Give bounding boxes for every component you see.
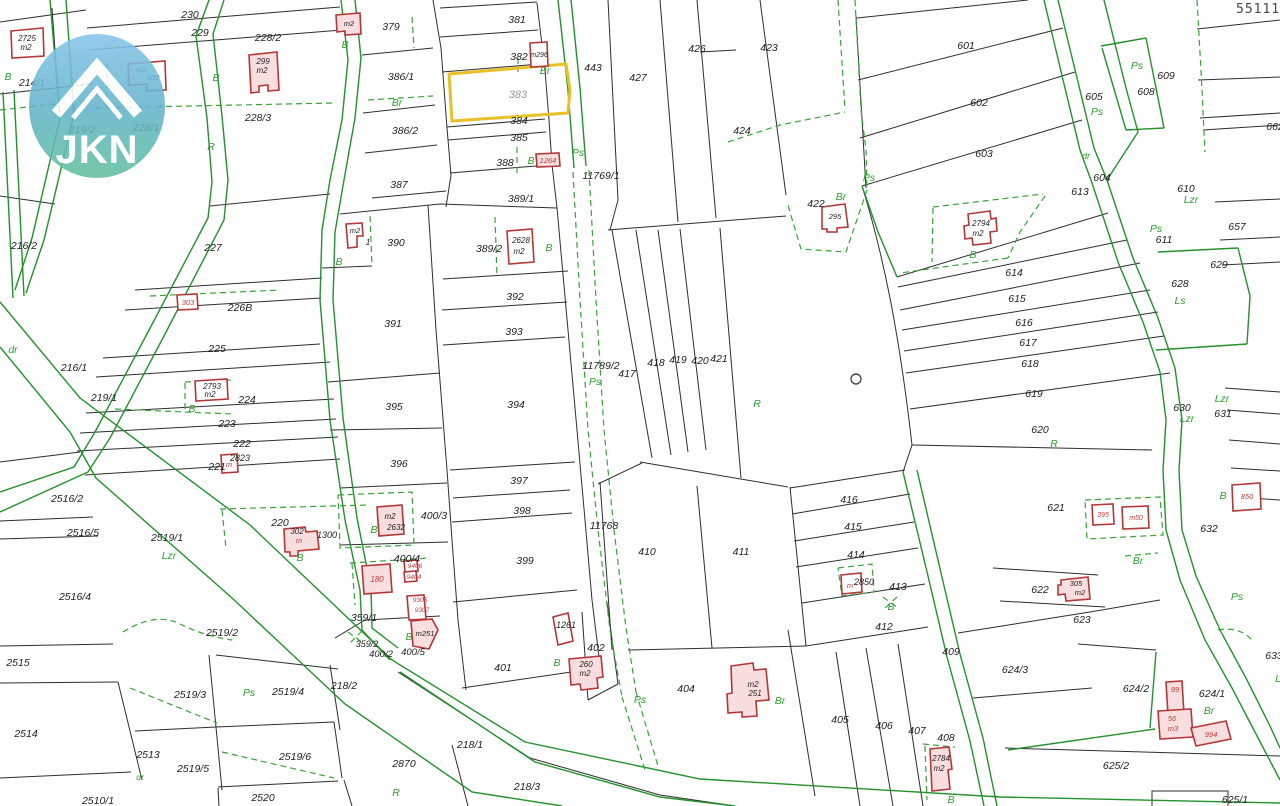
landuse-boundary-dashed <box>622 697 645 770</box>
parcel-boundary-line <box>1005 748 1280 756</box>
building-label: m2 <box>579 669 591 678</box>
parcel-number-label: 415 <box>844 521 862 533</box>
parcel-boundary-line <box>216 655 338 669</box>
parcel-number-label: 2515 <box>5 657 30 669</box>
parcel-boundary-line <box>1215 199 1280 202</box>
parcel-number-label: 619 <box>1025 388 1043 400</box>
parcel-boundary-line <box>340 204 557 214</box>
landuse-label: B <box>545 242 552 254</box>
landuse-label: B <box>887 601 894 613</box>
parcel-number-label: 230 <box>180 9 199 21</box>
parcel-boundary-line <box>87 7 340 28</box>
landuse-label: Ps <box>863 172 876 184</box>
landuse-label: B <box>188 403 195 415</box>
parcel-boundary-line <box>660 0 678 222</box>
parcel-boundary-line <box>0 682 118 683</box>
landuse-label: dr <box>136 772 145 782</box>
parcel-number-label: 2516/5 <box>66 527 99 539</box>
parcel-number-label: 410 <box>638 546 656 558</box>
survey-point-marker <box>851 374 861 384</box>
parcel-number-label: 2823 <box>229 453 250 463</box>
parcel-number-label: 411 <box>733 546 750 558</box>
parcel-number-label: 617 <box>1019 337 1038 349</box>
parcel-number-label: 216/1 <box>60 362 87 374</box>
parcel-boundary-line <box>209 655 216 727</box>
road-edge-line <box>917 470 997 806</box>
parcel-number-label: 386/1 <box>388 71 414 83</box>
building-label: 9404 <box>407 574 422 581</box>
parcel-number-label: 620 <box>1031 424 1049 436</box>
parcel-boundary-line <box>344 780 352 806</box>
parcel-number-label: 413 <box>889 581 907 593</box>
building-label: 56 <box>1168 714 1177 723</box>
parcel-boundary-line <box>453 490 570 498</box>
building-label: m2 <box>344 19 355 28</box>
road-edge-line <box>1158 248 1238 252</box>
building-label: m50 <box>1129 515 1143 522</box>
parcel-boundary-line <box>862 120 1082 186</box>
parcel-number-label: 408 <box>937 732 955 744</box>
logo-text: JKN <box>29 130 165 170</box>
parcel-boundary-line <box>862 186 912 445</box>
building-label: 260 <box>578 660 593 669</box>
road-edge-line <box>558 0 574 168</box>
parcel-number-label: 221 <box>207 461 226 473</box>
landuse-label: Ps <box>243 687 256 699</box>
landuse-label: Br <box>540 65 551 77</box>
selected-parcel-highlight[interactable]: 383 <box>449 64 570 121</box>
parcel-boundary-line <box>0 772 131 778</box>
parcel-number-label: 218/2 <box>330 680 357 692</box>
landuse-label: Lzr <box>162 550 177 562</box>
landuse-label: R <box>753 398 761 410</box>
landuse-boundary-dashed <box>115 409 232 414</box>
parcel-boundary-line <box>0 517 93 521</box>
parcel-boundary-line <box>218 781 338 787</box>
parcel-boundary-line <box>443 337 565 345</box>
landuse-label: R <box>207 141 215 153</box>
parcel-boundary-line <box>0 452 80 462</box>
parcel-number-label: 381 <box>508 14 526 26</box>
parcel-boundary-line <box>452 513 572 522</box>
landuse-boundary-dashed <box>1008 196 1045 258</box>
parcel-number-label: 389/1 <box>508 193 534 205</box>
parcel-number-label: 404 <box>677 683 695 695</box>
parcel-boundary-line <box>788 630 815 796</box>
landuse-label: Ps <box>1091 106 1104 118</box>
parcel-number-label: 397 <box>510 475 529 487</box>
parcel-number-label: 400/4 <box>394 553 420 565</box>
parcel-boundary-line <box>973 688 1092 698</box>
parcel-number-label: 220 <box>270 517 289 529</box>
landuse-label: B <box>212 72 219 84</box>
parcel-boundary-line <box>125 298 321 310</box>
parcel-number-label: 2516/4 <box>58 591 91 603</box>
highlighted-parcel-label: 383 <box>509 89 528 101</box>
buildings-layer: 2725m2m2100299m2m2m29612643032793m2m302m… <box>11 13 1261 791</box>
landuse-label: Ps <box>1231 591 1244 603</box>
landuse-label: R <box>1050 438 1058 450</box>
landuse-boundary-dashed <box>900 258 1008 273</box>
parcel-boundary-line <box>1229 440 1280 444</box>
parcel-boundary-line <box>365 145 437 153</box>
parcel-boundary-line <box>608 216 786 230</box>
road-edge-line <box>1146 38 1164 128</box>
parcel-boundary-line <box>340 483 447 488</box>
parcel-number-label: 625/2 <box>1103 760 1129 772</box>
landuse-boundary-dashed <box>573 172 622 697</box>
parcel-boundary-line <box>216 727 222 790</box>
parcel-number-label: 222 <box>232 438 251 450</box>
parcel-boundary-line <box>1198 77 1280 80</box>
parcel-number-label: 443 <box>584 62 602 74</box>
parcel-boundary-line <box>1000 601 1105 607</box>
parcel-number-label: 629 <box>1210 259 1228 271</box>
landuse-label: B <box>370 524 377 536</box>
parcel-number-label: 631 <box>1214 408 1232 420</box>
parcel-number-label: 2513 <box>135 749 160 761</box>
parcel-boundary-line <box>1200 113 1280 118</box>
building-label: 2784 <box>931 754 950 763</box>
landuse-label: Ps <box>572 147 585 159</box>
parcel-number-label: 2510/1 <box>81 795 114 806</box>
parcel-boundary-line <box>658 230 688 452</box>
road-edge-line <box>0 347 562 806</box>
parcel-number-label: 226B <box>227 302 253 314</box>
parcel-number-label: 379 <box>382 21 400 33</box>
parcel-boundary-line <box>958 600 1160 633</box>
parcel-number-label: 2519/2 <box>205 627 238 639</box>
parcel-boundary-line <box>0 10 86 22</box>
building-label: 302 <box>290 527 304 536</box>
parcel-number-label: 621 <box>1047 502 1065 514</box>
parcel-number-label: 422 <box>807 198 825 210</box>
landuse-label: Ps <box>1131 60 1144 72</box>
building-label: 251 <box>747 689 761 698</box>
building-label: 9307 <box>415 607 430 614</box>
parcel-number-label: 420 <box>691 355 709 367</box>
parcel-number-label: 624/2 <box>1123 683 1149 695</box>
parcel-number-label: 400/2 <box>369 649 393 660</box>
parcel-boundary-line <box>1078 644 1156 650</box>
landuse-label: B <box>341 39 348 51</box>
parcel-number-label: 657 <box>1228 221 1247 233</box>
parcel-number-label: 384 <box>510 115 528 127</box>
parcel-number-label: 623 <box>1073 614 1091 626</box>
landuse-label: R <box>392 787 400 799</box>
parcel-number-label: 615 <box>1008 293 1026 305</box>
building-footprint <box>964 211 997 245</box>
cadastral-map[interactable]: 383 2725m2m2100299m2m2m29612643032793m2m… <box>0 0 1280 806</box>
parcel-boundary-line <box>628 646 806 650</box>
parcel-number-label: 2519/5 <box>176 763 209 775</box>
parcel-number-label: 224 <box>237 394 256 406</box>
parcel-number-label: 218/1 <box>456 739 483 751</box>
parcel-boundary-line <box>1225 388 1280 392</box>
parcel-number-label: 1 <box>366 237 371 247</box>
parcel-boundary-line <box>598 463 642 484</box>
parcel-number-label: 395 <box>385 401 403 413</box>
building-label: 180 <box>370 575 384 584</box>
building-label: 99 <box>1171 685 1180 694</box>
landuse-label: Br <box>775 695 786 707</box>
parcel-number-label: 601 <box>957 40 975 52</box>
map-sheet-number: 5511115 <box>1236 2 1280 17</box>
parcel-boundary-line <box>636 230 671 455</box>
parcel-boundary-line <box>442 302 567 310</box>
parcel-boundary-line <box>135 722 334 731</box>
parcel-boundary-line <box>680 229 706 450</box>
parcel-boundary-line <box>897 213 1108 277</box>
parcel-boundary-line <box>77 437 338 451</box>
landuse-label: B <box>335 256 342 268</box>
parcel-boundary-line <box>0 644 113 646</box>
cadastral-map-viewport[interactable]: 383 2725m2m2100299m2m2m29612643032793m2m… <box>0 0 1280 806</box>
landuse-label: B <box>4 71 11 83</box>
parcel-boundary-line <box>1231 468 1280 471</box>
building-label: 2628 <box>511 236 530 245</box>
parcel-number-label: 407 <box>908 725 927 737</box>
parcel-number-label: 11768 <box>590 520 619 532</box>
parcel-boundary-line <box>1222 262 1280 265</box>
parcel-number-label: 624/3 <box>1002 664 1028 676</box>
parcel-number-label: 219/1 <box>90 392 117 404</box>
parcel-number-label: 426 <box>688 43 706 55</box>
landuse-label: Br <box>836 191 847 203</box>
building-label: 994 <box>1205 730 1218 739</box>
parcel-number-label: 605 <box>1085 91 1103 103</box>
parcel-number-label: 421 <box>710 353 728 365</box>
parcel-number-label: 389/2 <box>476 243 502 255</box>
parcel-number-label: 400/5 <box>401 647 425 658</box>
landuse-boundary-dashed <box>1197 0 1205 152</box>
parcel-boundary-line <box>640 462 788 487</box>
landuse-label: Br <box>1133 555 1144 567</box>
building-label: 1264 <box>540 156 557 165</box>
parcel-number-label: 225 <box>207 343 226 355</box>
road-edge-line <box>1104 0 1138 180</box>
landuse-label: B <box>553 657 560 669</box>
parcel-boundary-line <box>790 470 905 488</box>
landuse-label: Lzr <box>1180 413 1195 425</box>
parcel-boundary-line <box>903 445 912 472</box>
road-edge-line <box>1238 248 1250 344</box>
landuse-boundary-dashed <box>933 194 1043 207</box>
building-label: m2 <box>350 226 361 235</box>
landuse-boundary-dashed <box>222 510 226 548</box>
landuse-label: L <box>1275 673 1280 685</box>
road-edge-line <box>3 92 13 298</box>
landuse-label: B <box>969 249 976 261</box>
parcel-number-label: 622 <box>1031 584 1049 596</box>
landuse-label: Ps <box>634 694 647 706</box>
parcel-number-label: 604 <box>1093 172 1111 184</box>
building-label: m2 <box>256 66 268 75</box>
road-edge-line <box>862 186 897 277</box>
parcel-number-label: 385 <box>510 132 528 144</box>
parcel-boundary-line <box>760 0 786 195</box>
parcel-number-label: 412 <box>875 621 893 633</box>
building-label: 303 <box>182 298 195 307</box>
landuse-boundary-dashed <box>838 0 845 110</box>
building-label: 850 <box>1241 492 1254 501</box>
parcel-boundary-line <box>1227 410 1280 414</box>
parcel-number-label: 611 <box>1156 234 1173 246</box>
landuse-boundary-dashed <box>412 17 414 48</box>
road-edge-line <box>1150 652 1156 728</box>
parcel-number-label: 419 <box>669 354 687 366</box>
parcel-boundary-line <box>362 48 433 55</box>
parcel-boundary-line <box>993 568 1098 575</box>
parcel-number-label: 396 <box>390 458 408 470</box>
survey-point <box>851 374 861 384</box>
building-label: m2 <box>384 512 396 521</box>
parcel-number-label: 417 <box>618 368 637 380</box>
landuse-label: Lzr <box>1184 194 1199 206</box>
parcel-boundary-line <box>340 542 448 545</box>
road-edge-line <box>1156 344 1247 350</box>
parcel-boundary-line <box>912 445 1152 450</box>
parcel-boundary-line <box>1197 20 1280 29</box>
landuse-label: dr <box>8 344 18 356</box>
parcel-boundary-line <box>440 2 537 8</box>
parcel-number-label: 2516/2 <box>50 493 83 505</box>
parcel-number-label: 11769/1 <box>582 170 619 182</box>
building-label: m251 <box>416 629 435 638</box>
parcel-number-label: 216/2 <box>10 240 37 252</box>
landuse-label: B <box>527 155 534 167</box>
parcel-number-label: 616 <box>1015 317 1033 329</box>
building-label: m <box>847 581 853 590</box>
parcel-number-label: 400/3 <box>421 510 447 522</box>
parcel-number-label: 427 <box>629 72 648 84</box>
landuse-boundary-dashed <box>589 170 636 692</box>
building-label: 299 <box>255 57 270 66</box>
landuse-label: dr <box>1082 151 1091 161</box>
parcel-number-label: 228/3 <box>244 112 271 124</box>
parcel-number-label: 2520 <box>250 792 275 804</box>
parcel-boundary-line <box>836 652 860 806</box>
parcel-boundary-line <box>330 428 442 430</box>
parcel-number-label: 406 <box>875 720 893 732</box>
parcel-number-label: 398 <box>513 505 531 517</box>
parcel-boundary-line <box>697 0 716 218</box>
parcel-boundary-line <box>860 72 1075 138</box>
parcel-number-label: 662 <box>1266 121 1280 133</box>
parcel-boundary-line <box>857 0 1028 18</box>
parcel-number-label: 409 <box>942 646 960 658</box>
parcel-number-label: 608 <box>1137 86 1155 98</box>
parcel-boundary-line <box>612 230 652 458</box>
parcel-number-label: 394 <box>507 399 525 411</box>
landuse-boundary-dashed <box>923 744 955 747</box>
parcel-number-label: 2519/1 <box>150 532 183 544</box>
parcel-boundary-line <box>462 670 585 688</box>
road-edge-line <box>14 90 24 296</box>
parcel-number-label: 414 <box>847 549 865 561</box>
parcel-boundary-line <box>448 132 546 140</box>
parcel-number-label: 633 <box>1265 650 1280 662</box>
building-label: m2 <box>204 390 216 399</box>
building-label: m2 <box>513 247 525 256</box>
parcel-number-label: 359/1 <box>351 612 377 624</box>
landuse-label: Br <box>392 97 403 109</box>
parcel-boundary-line <box>328 373 440 382</box>
building-label: m2 <box>933 764 945 773</box>
parcel-number-label: 386/2 <box>392 125 418 137</box>
parcel-number-label: 388 <box>496 157 514 169</box>
parcel-number-label: 625/1 <box>1222 794 1248 806</box>
building-label: m <box>296 536 302 545</box>
jkn-logo-watermark: JKN <box>29 34 165 178</box>
parcel-number-label: 423 <box>760 42 778 54</box>
parcel-boundary-line <box>452 745 468 806</box>
landuse-label: B <box>1219 490 1226 502</box>
building-label: 2794 <box>971 219 990 228</box>
parcel-boundary-line <box>858 28 1063 80</box>
parcel-number-label: 229 <box>190 27 209 39</box>
building-label: m296 <box>530 52 548 59</box>
parcel-number-label: 1261 <box>556 620 576 630</box>
parcel-number-label: 602 <box>970 97 988 109</box>
building-label: 305 <box>1070 579 1083 588</box>
parcel-number-label: 632 <box>1200 523 1218 535</box>
parcel-boundary-line <box>334 722 342 778</box>
parcel-number-label: 614 <box>1005 267 1023 279</box>
building-label: 2632 <box>386 523 405 532</box>
parcel-number-label: 2519/6 <box>278 751 311 763</box>
parcel-number-label: 418 <box>647 357 665 369</box>
parcel-boundary-line <box>1152 791 1228 806</box>
parcel-number-label: 391 <box>384 318 402 330</box>
building-label: 295 <box>828 212 842 221</box>
parcel-number-label: 223 <box>217 418 236 430</box>
parcel-number-label: 618 <box>1021 358 1039 370</box>
parcel-number-label: 399 <box>516 555 534 567</box>
parcel-boundary-line <box>443 271 568 279</box>
road-edge-line <box>1102 48 1126 130</box>
road-edge-line <box>571 0 586 166</box>
parcel-boundary-line <box>806 627 928 646</box>
parcel-boundary-line <box>433 0 451 207</box>
landuse-dashed-layer <box>0 0 1253 800</box>
road-edge-line <box>1126 128 1164 130</box>
parcel-number-label: 11789/2 <box>582 360 619 372</box>
landuse-boundary-dashed <box>352 563 355 605</box>
parcel-number-label: 392 <box>506 291 524 303</box>
parcel-number-label: 218/3 <box>513 781 540 793</box>
parcel-number-label: 2850 <box>853 577 874 587</box>
road-edge-line <box>1008 729 1155 750</box>
landuse-boundary-dashed <box>932 208 933 262</box>
parcel-number-label: 613 <box>1071 186 1089 198</box>
landuse-label: Ls <box>1174 295 1186 307</box>
parcel-number-label: 405 <box>831 714 849 726</box>
parcel-boundary-line <box>372 191 446 198</box>
building-label: 395 <box>1097 512 1109 519</box>
building-label: m3 <box>1168 724 1179 733</box>
parcel-number-label: 382 <box>510 51 528 63</box>
landuse-label: Br <box>1204 705 1215 717</box>
landuse-label: Lzr <box>1215 393 1230 405</box>
parcel-boundary-line <box>218 788 219 806</box>
parcel-boundary-line <box>537 3 557 208</box>
landuse-boundary-dashed <box>220 505 368 509</box>
parcel-number-label: 2519/4 <box>271 686 304 698</box>
parcel-number-label: 227 <box>203 242 223 254</box>
parcel-number-label: 401 <box>494 662 512 674</box>
parcel-boundary-line <box>453 590 577 602</box>
